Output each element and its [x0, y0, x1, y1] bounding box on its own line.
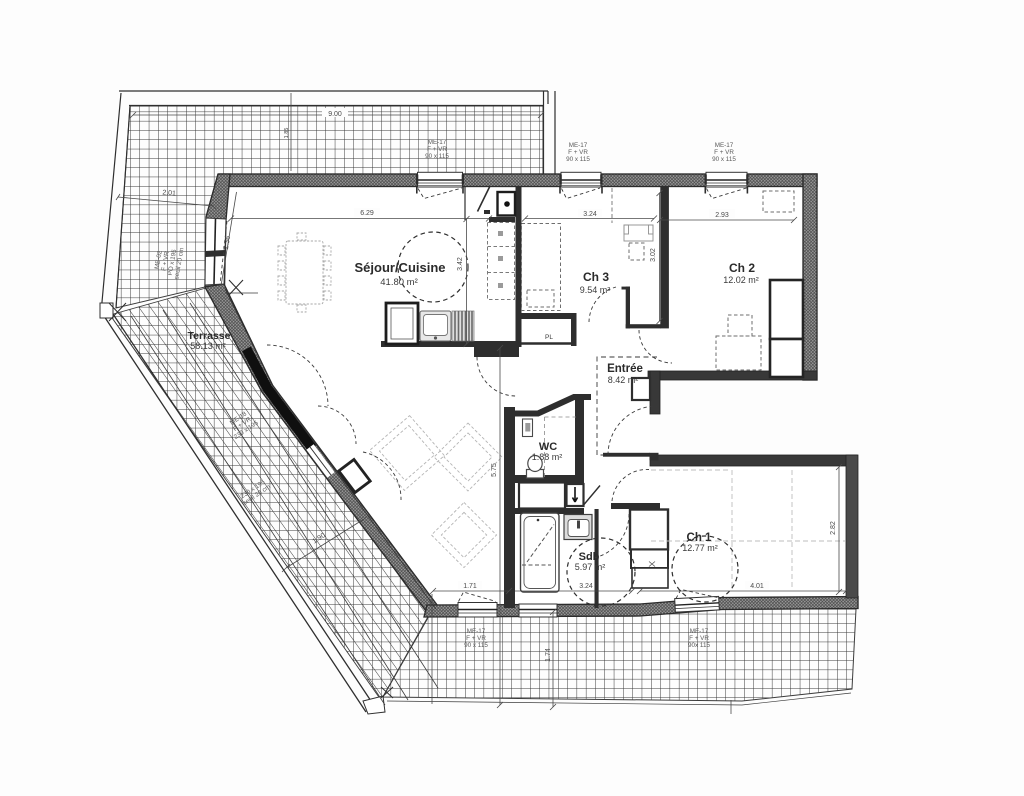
svg-text:1.85: 1.85: [284, 128, 290, 139]
svg-text:9.00: 9.00: [328, 111, 342, 118]
svg-text:3.02: 3.02: [650, 248, 657, 262]
svg-text:4.01: 4.01: [750, 583, 764, 590]
svg-text:5.97 m²: 5.97 m²: [575, 562, 606, 572]
svg-text:2.93: 2.93: [715, 212, 729, 219]
svg-text:12.02 m²: 12.02 m²: [723, 275, 759, 285]
svg-text:Ch 2: Ch 2: [729, 261, 755, 275]
svg-text:2.01: 2.01: [162, 190, 176, 198]
svg-text:90 x 115: 90 x 115: [464, 642, 488, 649]
svg-text:58.13 m²: 58.13 m²: [190, 341, 226, 351]
svg-text:F + VR: F + VR: [714, 149, 734, 156]
svg-text:90 x 115: 90 x 115: [566, 156, 590, 163]
svg-text:3.24: 3.24: [579, 583, 593, 590]
svg-text:Séjour/Cuisine: Séjour/Cuisine: [354, 260, 445, 275]
svg-text:2.82: 2.82: [830, 521, 837, 535]
svg-text:F + VR: F + VR: [568, 149, 588, 156]
svg-text:ME-17: ME-17: [428, 139, 447, 146]
svg-text:1.88 m²: 1.88 m²: [532, 452, 563, 462]
svg-text:F + VR: F + VR: [427, 146, 447, 153]
svg-text:5.75: 5.75: [491, 463, 498, 477]
svg-text:1.71: 1.71: [463, 583, 477, 590]
svg-text:1.74: 1.74: [545, 648, 552, 662]
svg-text:90 x 115: 90 x 115: [712, 156, 736, 163]
svg-text:3.24: 3.24: [583, 211, 597, 218]
svg-text:PL: PL: [545, 334, 553, 341]
svg-text:ME-17: ME-17: [690, 628, 709, 635]
svg-text:6.29: 6.29: [360, 210, 374, 217]
svg-text:F + VR: F + VR: [466, 635, 486, 642]
svg-text:12.77 m²: 12.77 m²: [682, 543, 718, 553]
svg-text:ME-17: ME-17: [715, 142, 734, 149]
svg-text:F + VR: F + VR: [689, 635, 709, 642]
svg-text:ME-17: ME-17: [467, 628, 486, 635]
svg-text:ME-17: ME-17: [569, 142, 588, 149]
svg-text:90x 115: 90x 115: [688, 642, 710, 649]
svg-text:3.42: 3.42: [457, 257, 464, 271]
svg-text:Entrée: Entrée: [607, 363, 643, 375]
svg-text:8.42 m²: 8.42 m²: [608, 375, 639, 385]
svg-text:9.54 m²: 9.54 m²: [580, 285, 611, 295]
svg-text:90 x 115: 90 x 115: [425, 153, 449, 160]
svg-text:Ch 3: Ch 3: [583, 270, 609, 284]
svg-text:41.80 m²: 41.80 m²: [380, 277, 418, 288]
